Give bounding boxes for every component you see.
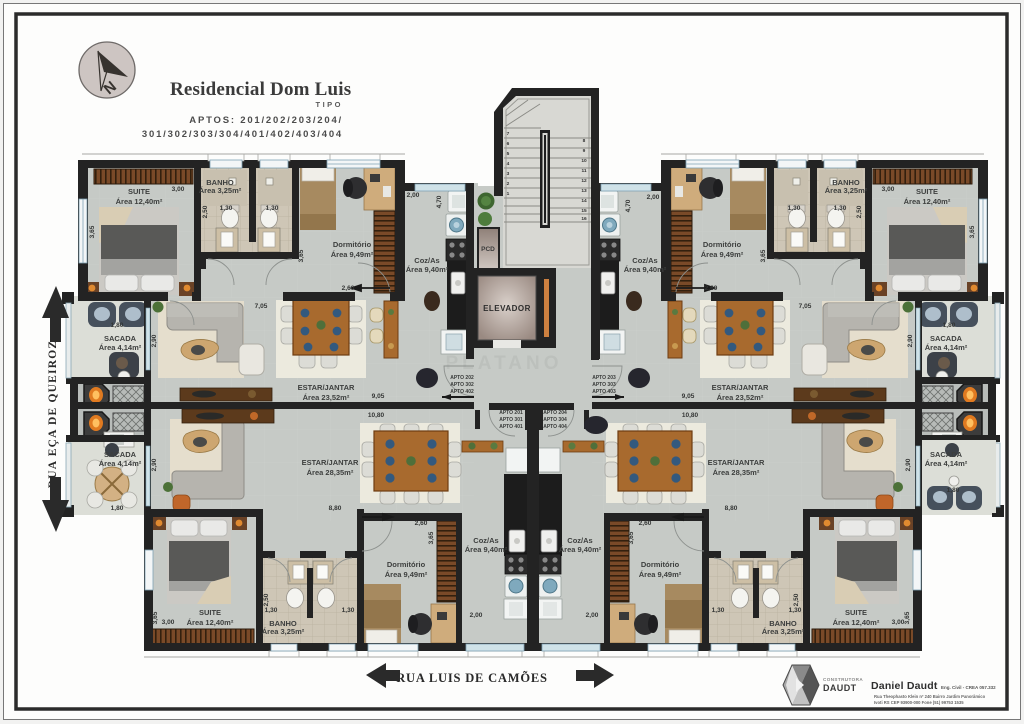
svg-text:APTOS: 201/202/203/204/: APTOS: 201/202/203/204/: [189, 115, 343, 126]
svg-text:SACADA: SACADA: [104, 334, 137, 343]
svg-text:Área 23,52m²: Área 23,52m²: [717, 393, 764, 402]
svg-text:APTO 404: APTO 404: [543, 424, 567, 430]
svg-text:Eng. Civil - CREA 057.332: Eng. Civil - CREA 057.332: [941, 685, 996, 690]
svg-text:Dormitório: Dormitório: [387, 560, 426, 569]
svg-text:APTO 302: APTO 302: [450, 382, 474, 388]
svg-text:2,50: 2,50: [202, 205, 209, 218]
svg-text:3,65: 3,65: [760, 249, 767, 262]
svg-text:APTO 401: APTO 401: [499, 424, 523, 430]
svg-text:Área 12,40m²: Área 12,40m²: [187, 618, 234, 627]
svg-text:2,60: 2,60: [342, 285, 355, 292]
svg-text:1,30: 1,30: [342, 607, 355, 614]
svg-text:Área 3,25m²: Área 3,25m²: [825, 186, 868, 195]
svg-text:APTO 301: APTO 301: [499, 417, 523, 423]
svg-text:Área 9,49m²: Área 9,49m²: [331, 250, 374, 259]
svg-text:2,60: 2,60: [639, 520, 652, 527]
svg-text:TIPO: TIPO: [315, 100, 343, 109]
svg-text:APTO 402: APTO 402: [450, 389, 474, 395]
svg-text:7,05: 7,05: [799, 303, 812, 310]
svg-text:3,65: 3,65: [428, 531, 435, 544]
svg-text:2,50: 2,50: [263, 593, 270, 606]
svg-text:1,80: 1,80: [947, 487, 960, 494]
svg-text:Rua Theophasto Klein nº 240 Ba: Rua Theophasto Klein nº 240 Bairro Jardi…: [874, 694, 986, 699]
svg-text:3: 3: [507, 171, 510, 177]
svg-text:Ivoti RS CEP 93900-000 Fone: Ivoti RS CEP 93900-000 Fone (51) 99753 1…: [874, 700, 964, 705]
svg-text:APTO 403: APTO 403: [592, 389, 616, 395]
svg-text:2,60: 2,60: [705, 285, 718, 292]
svg-text:6: 6: [507, 141, 510, 147]
svg-text:Área 3,25m²: Área 3,25m²: [199, 186, 242, 195]
svg-text:SUITE: SUITE: [128, 187, 150, 196]
svg-text:3,00: 3,00: [172, 186, 185, 193]
svg-text:9: 9: [583, 148, 586, 154]
svg-text:301/302/303/304/401/402/403/40: 301/302/303/304/401/402/403/404: [142, 129, 343, 140]
svg-text:Residencial Dom Luis: Residencial Dom Luis: [170, 79, 351, 100]
svg-text:5: 5: [507, 151, 510, 157]
svg-text:Área 4,14m²: Área 4,14m²: [925, 343, 968, 352]
svg-text:1,30: 1,30: [220, 205, 233, 212]
svg-text:ELEVADOR: ELEVADOR: [483, 304, 531, 313]
svg-text:7: 7: [507, 131, 510, 137]
svg-text:1,80: 1,80: [111, 505, 124, 512]
svg-text:Área 23,52m²: Área 23,52m²: [303, 393, 350, 402]
svg-text:2,00: 2,00: [407, 192, 420, 199]
svg-text:Dormitório: Dormitório: [703, 240, 742, 249]
svg-text:4,70: 4,70: [436, 195, 443, 208]
svg-text:1,80: 1,80: [111, 322, 124, 329]
svg-text:10,80: 10,80: [368, 412, 385, 419]
svg-text:SACADA: SACADA: [104, 450, 137, 459]
svg-text:3,00: 3,00: [162, 619, 175, 626]
svg-text:2,90: 2,90: [151, 458, 158, 471]
svg-text:2,90: 2,90: [905, 458, 912, 471]
svg-text:Área 4,14m²: Área 4,14m²: [99, 459, 142, 468]
svg-text:1,80: 1,80: [943, 322, 956, 329]
svg-text:1,30: 1,30: [834, 205, 847, 212]
svg-text:Área 28,35m²: Área 28,35m²: [307, 468, 354, 477]
svg-text:Área 9,49m²: Área 9,49m²: [701, 250, 744, 259]
svg-text:APTO 201: APTO 201: [499, 410, 523, 416]
svg-text:Área 28,35m²: Área 28,35m²: [713, 468, 760, 477]
svg-text:13: 13: [581, 188, 587, 194]
svg-text:Área 4,14m²: Área 4,14m²: [925, 459, 968, 468]
svg-text:2: 2: [507, 181, 510, 187]
svg-text:PCD: PCD: [481, 246, 495, 253]
svg-text:Área 9,49m²: Área 9,49m²: [385, 570, 428, 579]
svg-text:SUITE: SUITE: [916, 187, 938, 196]
svg-text:2,60: 2,60: [415, 520, 428, 527]
svg-text:Coz/As: Coz/As: [473, 536, 498, 545]
svg-text:Área 3,25m²: Área 3,25m²: [262, 627, 305, 636]
svg-text:ESTAR/JANTAR: ESTAR/JANTAR: [712, 383, 769, 392]
svg-text:RUA EÇA DE QUEIROZ: RUA EÇA DE QUEIROZ: [47, 340, 59, 488]
svg-text:8,80: 8,80: [725, 505, 738, 512]
svg-text:2,00: 2,00: [586, 612, 599, 619]
svg-text:APTO 202: APTO 202: [450, 375, 474, 381]
svg-text:ESTAR/JANTAR: ESTAR/JANTAR: [298, 383, 355, 392]
svg-text:3,65: 3,65: [152, 611, 159, 624]
svg-text:4,70: 4,70: [625, 199, 632, 212]
svg-text:11: 11: [581, 168, 586, 174]
svg-text:Área 9,40m²: Área 9,40m²: [624, 265, 667, 274]
svg-text:3,65: 3,65: [904, 611, 911, 624]
svg-text:Área 9,49m²: Área 9,49m²: [639, 570, 682, 579]
svg-text:Área 12,40m²: Área 12,40m²: [904, 197, 951, 206]
svg-text:Área 12,40m²: Área 12,40m²: [116, 197, 163, 206]
svg-text:Coz/As: Coz/As: [567, 536, 592, 545]
svg-text:Área 9,40m²: Área 9,40m²: [406, 265, 449, 274]
svg-text:Área 3,25m²: Área 3,25m²: [762, 627, 805, 636]
svg-text:8,80: 8,80: [329, 505, 342, 512]
svg-text:1,30: 1,30: [266, 205, 279, 212]
svg-text:2,50: 2,50: [856, 205, 863, 218]
svg-text:Coz/As: Coz/As: [414, 256, 439, 265]
svg-text:2,50: 2,50: [793, 593, 800, 606]
svg-text:RUA LUIS DE CAMÕES: RUA LUIS DE CAMÕES: [396, 671, 548, 685]
svg-text:10: 10: [581, 158, 587, 164]
svg-text:APTO 204: APTO 204: [543, 410, 567, 416]
svg-text:3,65: 3,65: [298, 249, 305, 262]
svg-text:4: 4: [507, 161, 510, 167]
svg-text:1,30: 1,30: [789, 607, 802, 614]
svg-text:9,05: 9,05: [682, 393, 695, 400]
svg-text:SACADA: SACADA: [930, 450, 963, 459]
svg-text:8: 8: [583, 138, 586, 144]
svg-text:Área 9,40m²: Área 9,40m²: [559, 545, 602, 554]
svg-text:14: 14: [581, 198, 587, 204]
svg-text:APTO 304: APTO 304: [543, 417, 567, 423]
svg-text:Dormitório: Dormitório: [641, 560, 680, 569]
svg-text:1,30: 1,30: [265, 607, 278, 614]
svg-text:9,05: 9,05: [372, 393, 385, 400]
svg-text:3,00: 3,00: [892, 619, 905, 626]
svg-text:2,00: 2,00: [470, 612, 483, 619]
svg-text:1: 1: [507, 191, 510, 197]
svg-text:2,00: 2,00: [647, 194, 660, 201]
svg-text:DAUDT: DAUDT: [823, 683, 857, 693]
svg-text:SUITE: SUITE: [845, 608, 867, 617]
svg-text:Área 4,14m²: Área 4,14m²: [99, 343, 142, 352]
svg-text:Coz/As: Coz/As: [632, 256, 657, 265]
svg-text:1,30: 1,30: [712, 607, 725, 614]
svg-text:2,90: 2,90: [907, 334, 914, 347]
svg-text:Dormitório: Dormitório: [333, 240, 372, 249]
svg-text:3,65: 3,65: [969, 225, 976, 238]
svg-text:3,65: 3,65: [628, 531, 635, 544]
svg-text:SUITE: SUITE: [199, 608, 221, 617]
svg-text:ESTAR/JANTAR: ESTAR/JANTAR: [302, 458, 359, 467]
svg-text:Área 9,40m²: Área 9,40m²: [465, 545, 508, 554]
svg-text:1,30: 1,30: [788, 205, 801, 212]
svg-text:3,65: 3,65: [89, 225, 96, 238]
svg-text:Daniel Daudt: Daniel Daudt: [871, 680, 938, 692]
svg-text:CONSTRUTORA: CONSTRUTORA: [823, 677, 863, 682]
svg-text:10,80: 10,80: [682, 412, 699, 419]
svg-text:12: 12: [581, 178, 587, 184]
svg-text:Área 12,40m²: Área 12,40m²: [833, 618, 880, 627]
svg-text:ESTAR/JANTAR: ESTAR/JANTAR: [708, 458, 765, 467]
svg-text:7,05: 7,05: [255, 303, 268, 310]
svg-text:2,90: 2,90: [151, 334, 158, 347]
svg-text:SACADA: SACADA: [930, 334, 963, 343]
svg-text:APTO 303: APTO 303: [592, 382, 616, 388]
svg-text:APTO 203: APTO 203: [592, 375, 616, 381]
svg-text:15: 15: [581, 208, 587, 214]
svg-text:16: 16: [581, 216, 587, 222]
svg-text:3,00: 3,00: [882, 186, 895, 193]
